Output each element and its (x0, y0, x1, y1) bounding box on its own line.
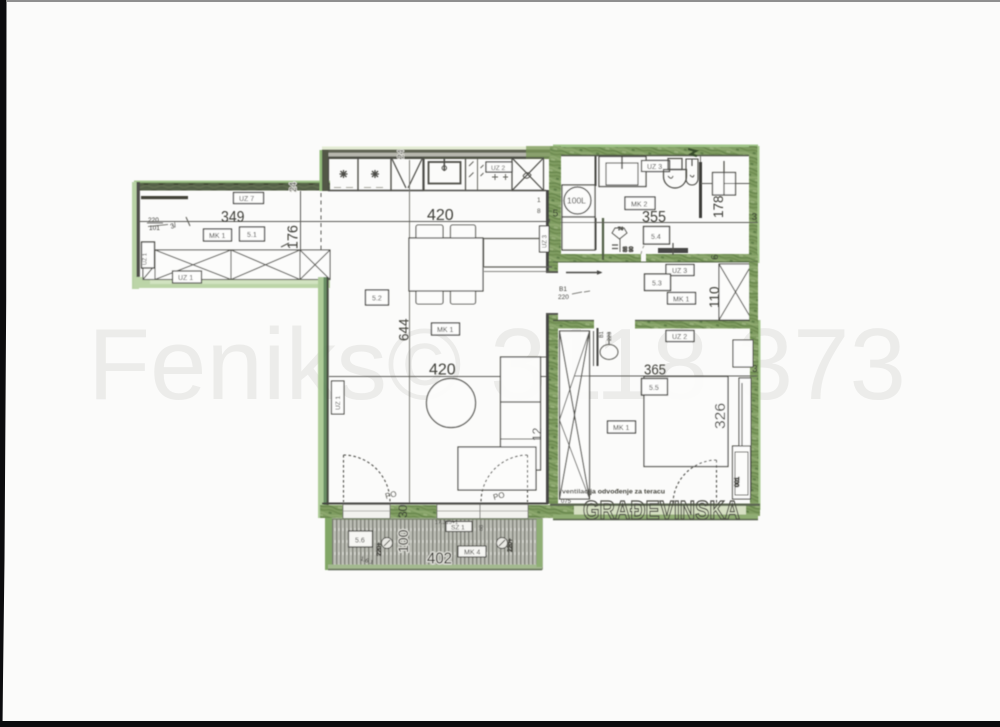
svg-text:24: 24 (396, 149, 406, 159)
svg-text:5: 5 (553, 208, 559, 220)
svg-text:420: 420 (427, 207, 454, 224)
svg-text:355: 355 (642, 209, 666, 226)
svg-text:UZ 3: UZ 3 (647, 164, 662, 171)
svg-text:220: 220 (558, 294, 569, 301)
svg-text:MK 4: MK 4 (464, 550, 480, 557)
svg-text:Feniks© 3118 373: Feniks© 3118 373 (88, 309, 906, 421)
svg-text:UZ 1: UZ 1 (335, 396, 342, 410)
svg-text:110: 110 (707, 286, 722, 308)
svg-text:420: 420 (429, 362, 456, 379)
svg-text:220+: 220+ (508, 538, 514, 552)
svg-text:B1: B1 (599, 331, 605, 338)
svg-text:349: 349 (221, 209, 245, 226)
svg-text:UZ 1: UZ 1 (143, 253, 149, 265)
svg-text:ventilacija odvođenje za terac: ventilacija odvođenje za teracu (562, 489, 665, 496)
svg-text:17.313+1: 17.313+1 (435, 520, 458, 526)
svg-text:UZ 2: UZ 2 (491, 165, 505, 172)
svg-text:5.4: 5.4 (651, 234, 661, 241)
svg-text:220+: 220+ (377, 542, 383, 556)
svg-text:MK 1: MK 1 (437, 327, 453, 334)
svg-text:B1: B1 (559, 286, 567, 293)
svg-text:30: 30 (396, 504, 410, 518)
svg-text:5.2: 5.2 (372, 296, 382, 303)
svg-text:100: 100 (395, 529, 411, 553)
svg-text:223: 223 (607, 332, 613, 341)
svg-text:5.6: 5.6 (355, 538, 365, 545)
svg-text:MK 2: MK 2 (631, 202, 647, 209)
svg-text:90: 90 (629, 246, 635, 252)
svg-text:1: 1 (537, 197, 541, 204)
svg-text:MK 1: MK 1 (673, 297, 689, 304)
svg-text:176: 176 (286, 225, 302, 249)
svg-text:075: 075 (561, 499, 572, 505)
svg-text:UZ 2: UZ 2 (672, 334, 687, 341)
svg-text:326: 326 (712, 403, 729, 429)
svg-text:24: 24 (288, 182, 298, 192)
svg-text:UZ 7: UZ 7 (239, 196, 254, 203)
svg-text:5.5: 5.5 (649, 385, 659, 392)
svg-text:402: 402 (427, 551, 452, 568)
svg-text:100L: 100L (567, 196, 586, 206)
svg-text:644: 644 (397, 318, 412, 341)
svg-text:6: 6 (710, 254, 721, 260)
svg-text:8: 8 (537, 208, 541, 215)
svg-text:UZ 3: UZ 3 (672, 268, 687, 275)
svg-text:5.3: 5.3 (652, 281, 662, 288)
svg-text:MK 1: MK 1 (209, 233, 225, 240)
svg-text:UZ 3: UZ 3 (543, 234, 549, 248)
svg-text:74: 74 (618, 226, 624, 231)
svg-text:12: 12 (530, 427, 544, 441)
svg-text:3: 3 (752, 212, 758, 223)
svg-text:178: 178 (711, 195, 726, 218)
svg-text:MK 1: MK 1 (613, 425, 629, 432)
svg-text:UZ 1: UZ 1 (178, 275, 193, 282)
svg-text:88: 88 (479, 525, 485, 531)
svg-text:5.1: 5.1 (247, 232, 257, 239)
svg-text:001: 001 (735, 476, 741, 487)
svg-text:GRAĐEVINSKA: GRAĐEVINSKA (583, 497, 740, 525)
